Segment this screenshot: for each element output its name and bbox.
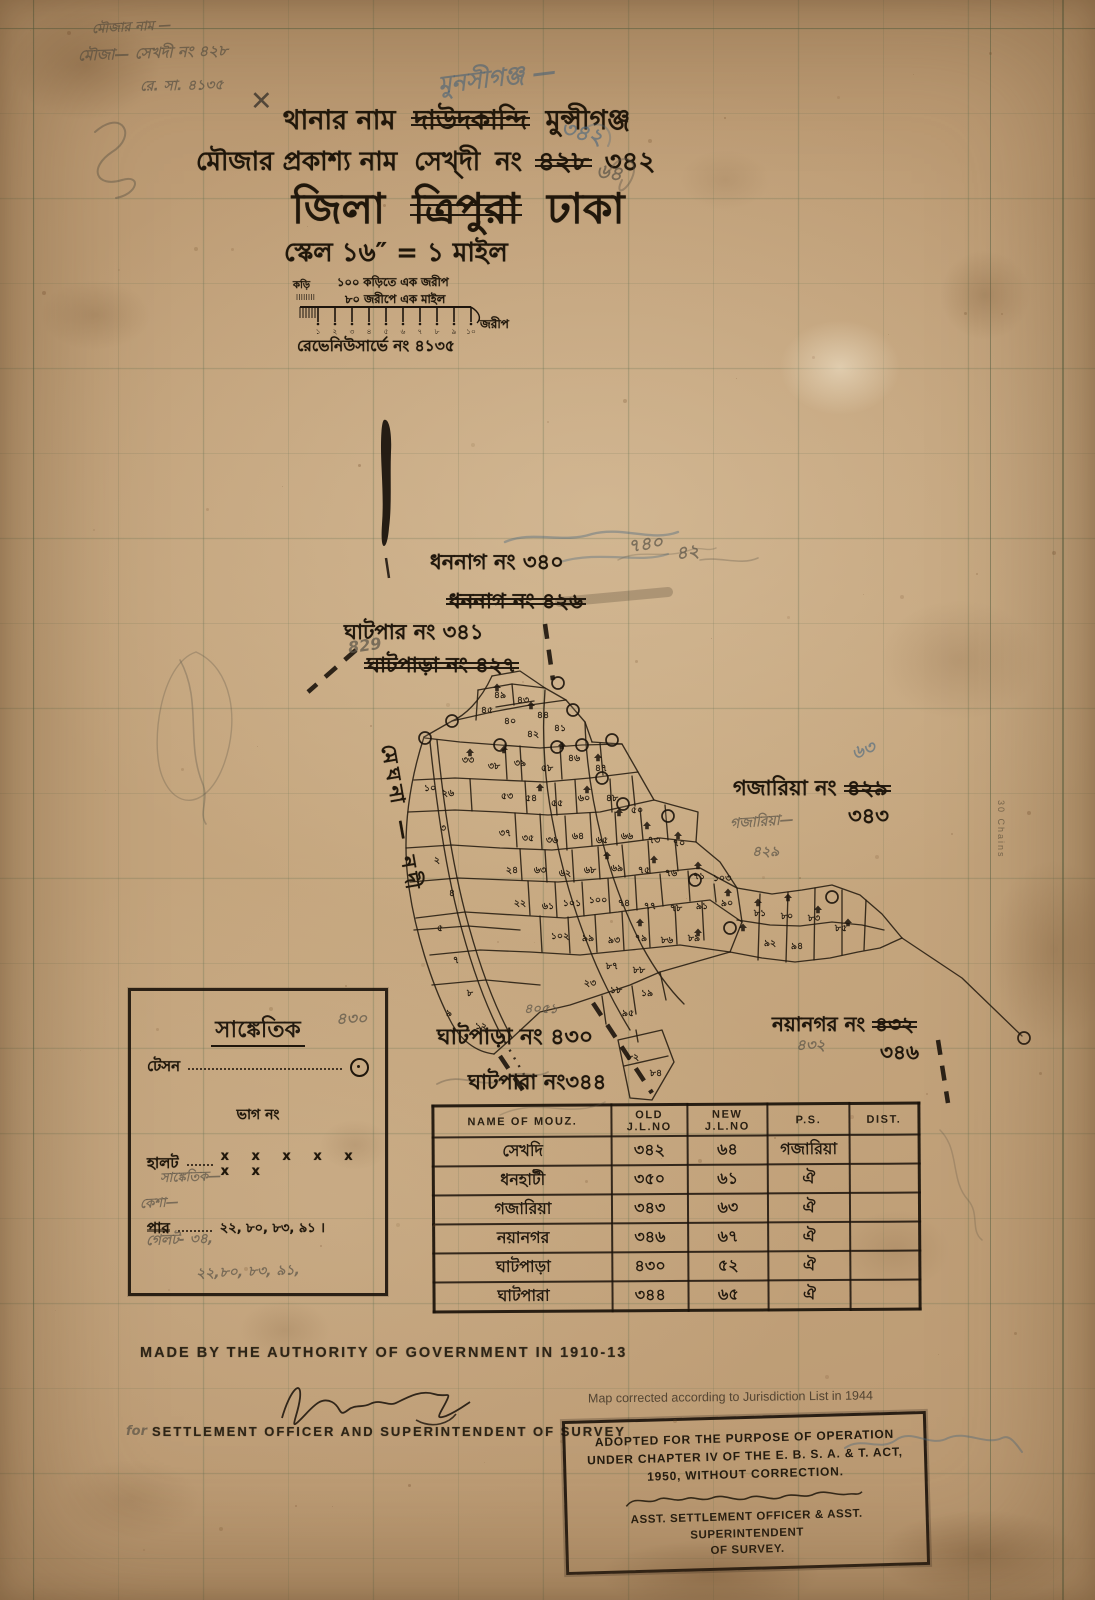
pencil-note: ✕ xyxy=(250,86,273,117)
parcel-boundary-line xyxy=(414,926,520,930)
boundary-label-text: নয়ানগর নং xyxy=(772,1012,872,1036)
parcel-boundary-line xyxy=(520,849,522,880)
boundary-label-text: ঘাটপার নং ৩৪১ xyxy=(344,620,484,644)
parcel-number: ৬২ xyxy=(559,868,571,879)
boundary-label-text: ৪২৯ xyxy=(844,776,891,800)
parcel-number: ৫৪ xyxy=(525,793,537,804)
parcel-number: ৯২ xyxy=(764,938,776,949)
hut-icon xyxy=(650,856,658,864)
boundary-label-text: ৩৪৩ xyxy=(848,804,889,828)
scalebar-tick-label: ৭ xyxy=(418,327,423,336)
scribble-mark xyxy=(95,123,135,198)
parcel-number: ৯৫ xyxy=(622,1008,634,1019)
hut-icon xyxy=(739,924,747,932)
parcel-number: ৯০ xyxy=(721,898,733,909)
pencil-note: মৌজার নাম — xyxy=(92,16,173,41)
mouza-boundary-label: ঘাটপাড়া নং ৪২৭ xyxy=(364,649,519,684)
parcel-boundary-line xyxy=(786,892,788,962)
pencil-note: ৪৩০ xyxy=(336,1006,367,1033)
boundary-label-text: ৩৪৬ xyxy=(880,1040,919,1064)
mouza-boundary-label: ৩৪৬ xyxy=(880,1038,919,1071)
scalebar-tick-foot xyxy=(402,323,405,326)
parcel-number: ৮৭ xyxy=(605,961,618,972)
station-circle-icon xyxy=(552,677,564,689)
parcel-boundary-line xyxy=(730,938,902,962)
scalebar-tick-foot xyxy=(453,323,456,326)
scalebar-flourish xyxy=(471,307,479,323)
scalebar-tick-foot xyxy=(351,323,354,326)
scalebar-tick-foot xyxy=(317,323,320,326)
pencil-note: ৭৪০ xyxy=(626,528,665,564)
scalebar-tick-foot xyxy=(470,323,473,326)
scribble-mark xyxy=(500,1102,605,1115)
parcel-number: ৭৩ xyxy=(648,835,661,846)
station-circle-icon xyxy=(576,739,588,751)
mouza-boundary-label: ধননাগ নং ৩৪০ xyxy=(430,546,564,581)
scribble-mark xyxy=(940,1130,982,1240)
parcel-number: ৮২ xyxy=(626,1052,639,1063)
hut-icon xyxy=(754,899,762,907)
parcel-number: ৪৮ xyxy=(606,793,619,804)
parcel-boundary-line xyxy=(714,884,716,902)
hut-icon xyxy=(603,852,611,860)
parcel-number: ৪৩ xyxy=(517,695,530,706)
pencil-note: গজারিয়া— xyxy=(729,808,794,836)
parcel-number: ৬১ xyxy=(542,901,554,912)
parcel-number: ২২ xyxy=(514,898,526,909)
parcel-number: ৩৭ xyxy=(499,828,511,839)
parcel-number: ৫ xyxy=(437,923,443,934)
boundary-label-text: ঘাটপাড়া নং ৪২৭ xyxy=(364,653,519,677)
parcel-boundary-line xyxy=(632,776,635,806)
parcel-number: ৮০ xyxy=(780,911,793,922)
station-circle-icon xyxy=(606,734,618,746)
scalebar-tick-foot xyxy=(436,323,439,326)
parcel-number: ৩৫ xyxy=(522,833,534,844)
parcel-number: ৪০ xyxy=(504,716,516,727)
dashed-boundary-line xyxy=(938,1040,948,1103)
pencil-note: মৌজা— সেখদী নং ৪২৮ xyxy=(78,39,229,69)
survey-map-sheet: থানার নাম দাউদকান্দি মুন্সীগঞ্জ মৌজার প্… xyxy=(0,0,1095,1600)
scalebar-tick-label: ৬ xyxy=(401,327,406,336)
mouza-boundary-label: ঘাটপাড়া নং ৪৩০ xyxy=(437,1020,593,1057)
hut-icon xyxy=(636,919,644,927)
parcel-number: ৭৫ xyxy=(638,865,650,876)
parcel-boundary-line xyxy=(555,882,557,917)
parcel-number: ২৩ xyxy=(584,978,597,989)
dashed-boundary-line xyxy=(545,624,553,680)
parcel-boundary-line xyxy=(608,879,610,913)
pencil-note: ৪০৫১ xyxy=(524,1000,558,1021)
parcel-number: ৮ xyxy=(466,988,474,999)
boundary-label-text: ঘাটপারা নং৩৪৪ xyxy=(468,1070,606,1094)
parcel-boundary-line xyxy=(470,779,472,811)
parcel-number: ২৪ xyxy=(506,865,518,876)
parcel-boundary-line xyxy=(528,881,530,915)
parcel-number: ৩ xyxy=(440,823,447,834)
scribble-mark xyxy=(700,558,758,561)
parcel-boundary-line xyxy=(660,972,666,1000)
parcel-number: ৪ xyxy=(449,888,455,899)
parcel-number: ৬৮ xyxy=(584,865,597,876)
station-circle-icon xyxy=(826,891,838,903)
parcel-boundary-line xyxy=(615,812,617,845)
parcel-number: ৬৩ xyxy=(534,865,547,876)
parcel-number: ৫৩ xyxy=(501,791,514,802)
station-circle-icon xyxy=(617,798,629,810)
parcel-number: ১০৩ xyxy=(713,873,732,884)
mouza-boundary-label: ধননাগ নং ৪২৬ xyxy=(446,585,586,620)
parcel-number: ৪৬ xyxy=(568,753,581,764)
parcel-boundary-line xyxy=(540,916,542,952)
parcel-number: ১৮ xyxy=(610,985,623,996)
scalebar-tick-label: ৯ xyxy=(452,327,457,336)
parcel-number: ৬৯ xyxy=(611,863,623,874)
parcel-number: ৪৪ xyxy=(537,710,549,721)
pencil-note: ২২,৮০, ৮৩, ৯১, xyxy=(196,1258,301,1286)
boundary-label-text: গজারিয়া নং xyxy=(733,776,844,800)
parcel-boundary-line xyxy=(814,888,815,960)
boundary-label-text: ধননাগ নং ৪২৬ xyxy=(446,589,586,613)
pencil-note: ৪২৯ xyxy=(752,840,779,864)
parcel-number: ৪১ xyxy=(554,723,566,734)
scalebar-tick-label: ৫ xyxy=(384,327,389,336)
parcel-number: ১০ xyxy=(424,783,436,794)
parcel-number: ৯ xyxy=(446,1008,452,1019)
parcel-number: ৫৫ xyxy=(551,798,563,809)
parcel-number: ৮৮ xyxy=(632,965,646,976)
scalebar-tick-foot xyxy=(368,323,371,326)
parcel-boundary-line xyxy=(595,915,597,952)
pencil-note: সাঙ্কেতিক— xyxy=(160,1167,222,1190)
parcel-number: ৪৭ xyxy=(595,763,607,774)
riverbank-mark xyxy=(381,420,391,546)
riverbank-tick xyxy=(386,558,389,578)
parcel-boundary-line xyxy=(582,882,584,916)
pencil-note: ৪২ xyxy=(674,537,701,571)
parcel-number: ৪৫ xyxy=(481,705,493,716)
pencil-note: for xyxy=(126,1424,147,1439)
parcel-boundary-line xyxy=(575,780,577,813)
parcel-boundary-line xyxy=(572,850,574,882)
parcel-boundary-line xyxy=(592,742,742,952)
mouza-boundary-label: ৩৪৩ xyxy=(848,800,889,835)
station-circle-icon xyxy=(419,732,431,744)
parcel-number: ৮৩ xyxy=(807,913,821,924)
parcel-boundary-line xyxy=(565,816,567,850)
parcel-boundary-line xyxy=(540,814,542,849)
parcel-boundary-line xyxy=(648,908,650,947)
parcel-number: ২ xyxy=(434,855,440,866)
scalebar-tick-label: ১ xyxy=(316,327,321,336)
parcel-boundary-line xyxy=(688,871,690,901)
parcel-number: ৯৪ xyxy=(791,941,803,952)
parcel-number: ৪৯ xyxy=(494,690,506,701)
mouza-boundary-label: ঘাটপারা নং৩৪৪ xyxy=(468,1066,606,1101)
parcel-boundary-line xyxy=(602,996,606,1024)
parcel-boundary-line xyxy=(425,738,622,748)
parcel-number: ৮৯ xyxy=(687,933,700,944)
hut-icon xyxy=(724,889,732,897)
parcel-number: ৬০ xyxy=(578,793,590,804)
parcel-number: ৯৯ xyxy=(582,933,594,944)
station-circle-icon xyxy=(567,704,579,716)
mouza-boundary-label: ঘাটপার নং ৩৪১ xyxy=(344,616,484,651)
parcel-number: ৫৮ xyxy=(541,763,554,774)
parcel-number: ৯১ xyxy=(696,901,708,912)
parcel-number: ৮১ xyxy=(753,908,766,919)
parcel-number: ১০০ xyxy=(589,895,608,906)
scalebar-tick-foot xyxy=(419,323,422,326)
station-circle-icon xyxy=(662,810,674,822)
parcel-number: ৬৬ xyxy=(621,831,634,842)
parcel-number: ১০১ xyxy=(563,898,582,909)
parcel-number: ৭৮ xyxy=(670,903,683,914)
parcel-boundary-line xyxy=(512,684,514,705)
parcel-number: ৬৫ xyxy=(596,835,608,846)
parcel-boundary-line xyxy=(622,912,624,950)
parcel-boundary-line xyxy=(660,874,663,906)
parcel-number: ৩৬ xyxy=(546,835,559,846)
parcel-number: ৫০ xyxy=(631,805,643,816)
scalebar-tick-foot xyxy=(385,323,388,326)
parcel-boundary-line xyxy=(515,813,517,847)
station-circle-icon xyxy=(1018,1032,1030,1044)
parcel-number: ৮৬ xyxy=(660,935,674,946)
scalebar-tick-label: ৪ xyxy=(367,327,372,336)
boundary-label-text: ৪৩২ xyxy=(872,1012,917,1036)
hut-icon xyxy=(536,784,544,792)
parcel-boundary-line xyxy=(635,876,637,910)
parcel-boundary-line xyxy=(590,813,592,846)
parcel-number: ৭০ xyxy=(673,838,685,849)
scalebar-tick-label: ২ xyxy=(333,327,338,336)
pencil-note: রে. সা. ৪১৩৫ xyxy=(140,73,224,98)
parcel-number: ৪২ xyxy=(527,729,539,740)
parcel-number: ৩৯ xyxy=(514,758,526,769)
scribble-mark xyxy=(157,652,232,800)
parcel-number: ৩৩ xyxy=(462,755,475,766)
hut-icon xyxy=(643,822,651,830)
parcel-number: ৭ xyxy=(453,955,459,966)
parcel-number: ৭১ xyxy=(693,871,705,882)
parcel-number: ২৬ xyxy=(442,788,455,799)
hut-icon xyxy=(784,894,792,902)
scalebar-tick-label: ১০ xyxy=(466,327,476,336)
parcel-number: ৮৫ xyxy=(834,923,847,934)
scalebar-tick-foot xyxy=(334,323,337,326)
parcel-number: ৭৬ xyxy=(665,868,678,879)
parcel-boundary-line xyxy=(902,938,1022,1036)
parcel-number: ৩৮ xyxy=(488,761,501,772)
station-circle-icon xyxy=(724,922,736,934)
boundary-label-text: ধননাগ নং ৩৪০ xyxy=(430,550,564,574)
parcel-number: ৬৪ xyxy=(572,831,584,842)
parcel-number: ৭৪ xyxy=(618,898,630,909)
station-circle-icon xyxy=(446,715,458,727)
cadastral-map-drawing: ৪৯৪৩৪৫৪৪৪০৪১৪২৩৩৩৮৩৯৫৮৪৬৪৭২৬৫৩৫৪৫৫৬০৪৮৫০… xyxy=(0,0,1095,1600)
pencil-note: গেলট- ৩৪, xyxy=(146,1227,214,1253)
parcel-number: ৮৪ xyxy=(649,1068,662,1079)
parcel-number: ১০২ xyxy=(551,931,570,942)
scalebar-tick-label: ৮ xyxy=(435,327,441,336)
parcel-number: ৯৩ xyxy=(608,935,621,946)
parcel-number: ১৯ xyxy=(641,988,653,999)
scalebar-tick-label: ৩ xyxy=(350,327,355,336)
parcel-number: ৭৭ xyxy=(644,901,656,912)
parcel-number: ৭৯ xyxy=(635,933,647,944)
boundary-label-text: ঘাটপাড়া নং ৪৩০ xyxy=(437,1025,593,1050)
scribble-mark xyxy=(845,1436,1022,1452)
parcel-boundary-line xyxy=(598,847,600,879)
pencil-note: কেশা— xyxy=(139,1193,179,1216)
